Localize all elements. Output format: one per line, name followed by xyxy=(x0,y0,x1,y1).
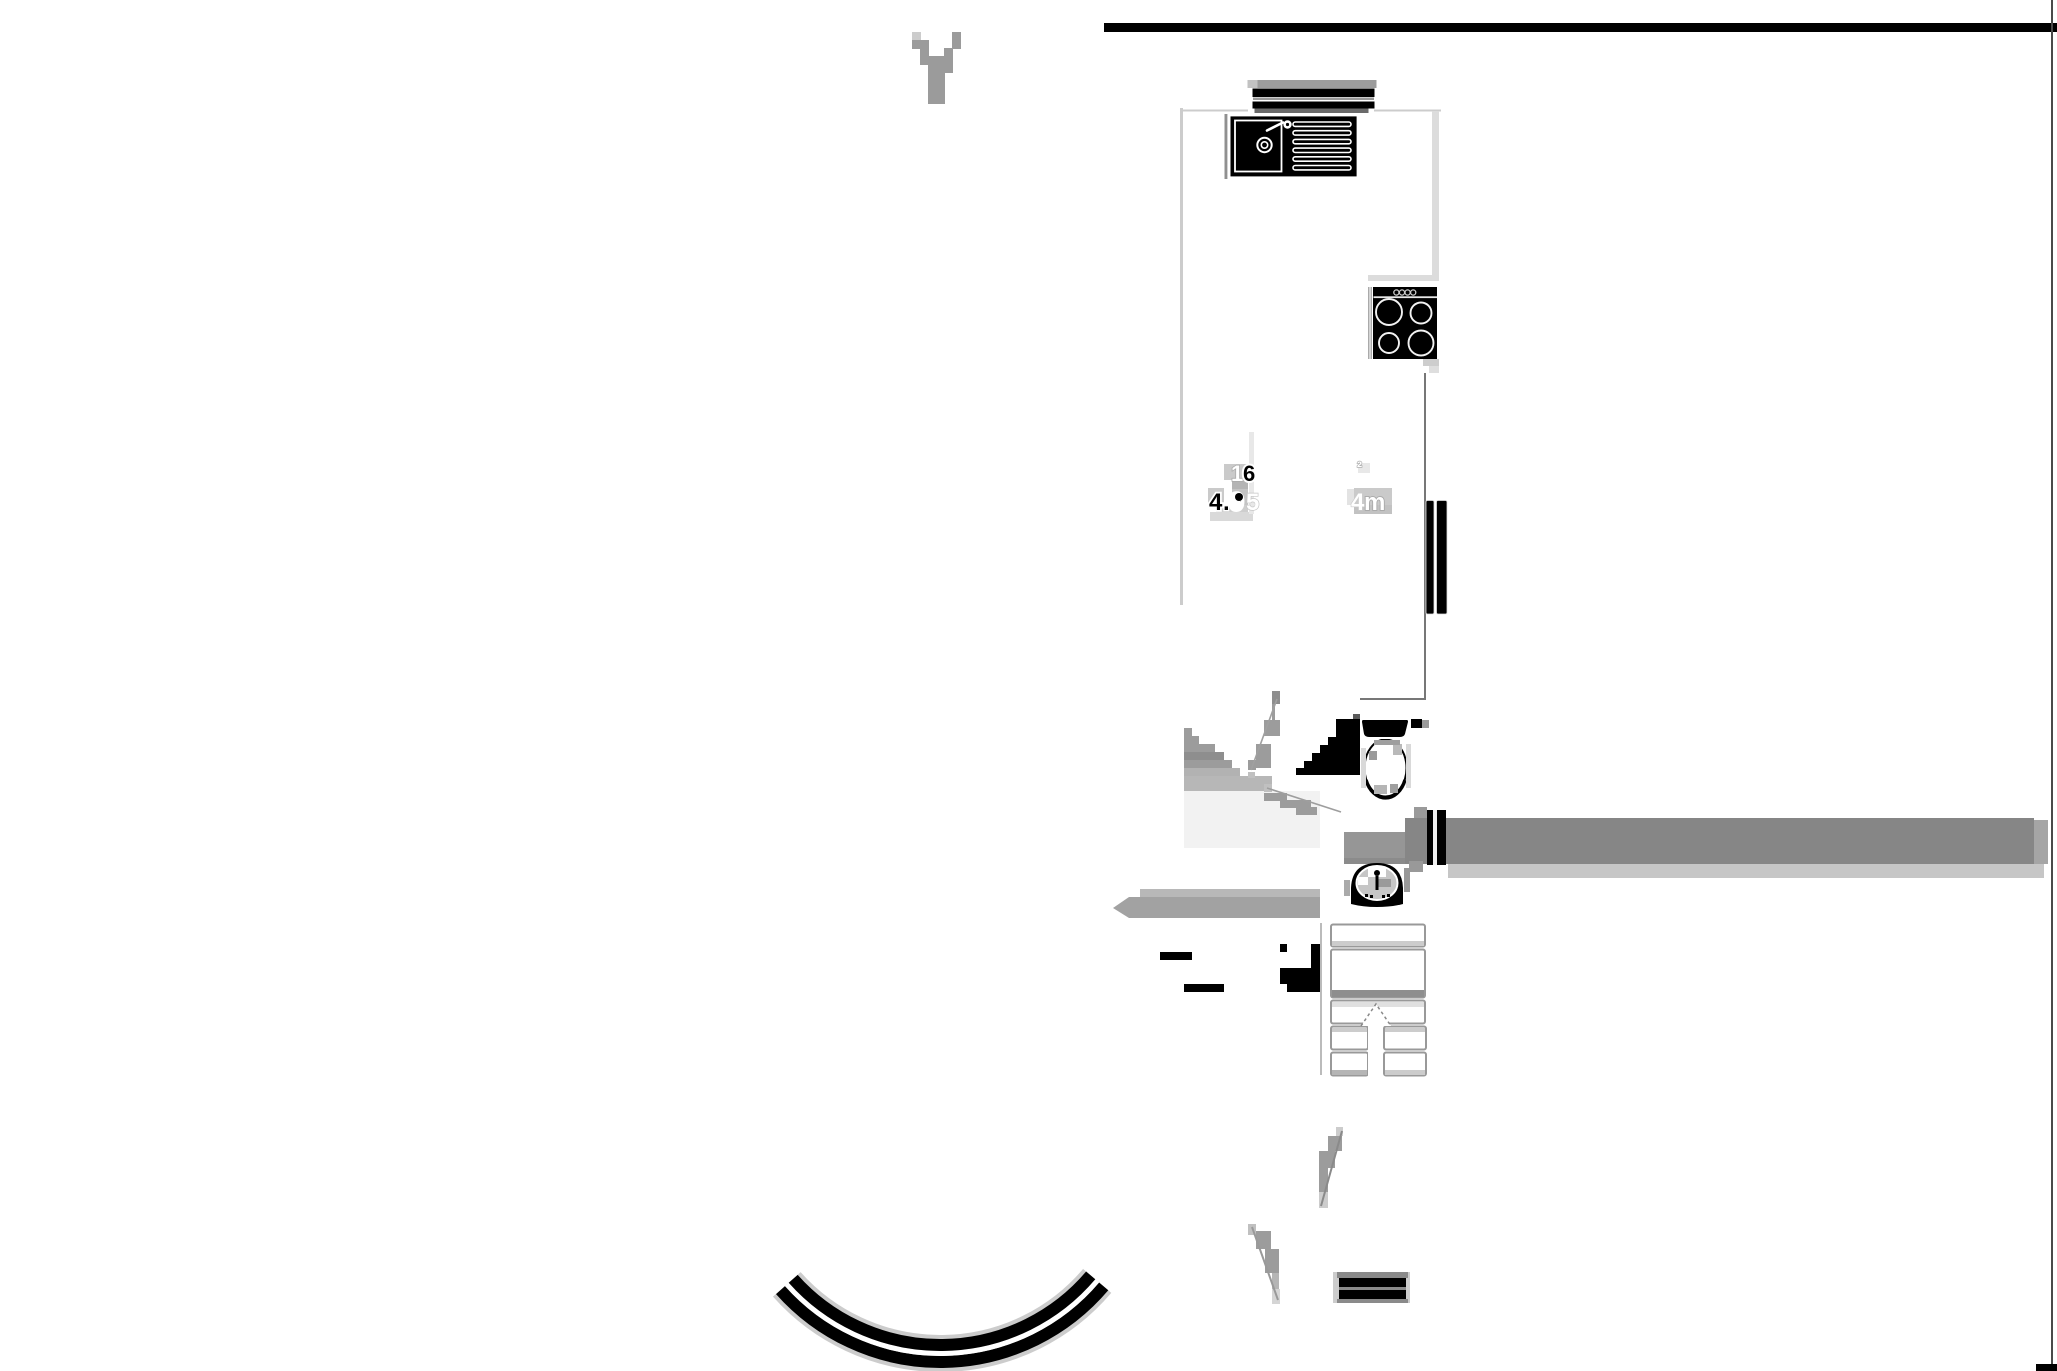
svg-text:1: 1 xyxy=(1231,461,1243,486)
svg-text:.: . xyxy=(1223,489,1230,516)
svg-text:4: 4 xyxy=(1209,489,1223,516)
svg-text:4: 4 xyxy=(1351,489,1365,516)
svg-text:m: m xyxy=(1364,489,1385,516)
svg-text:5: 5 xyxy=(1246,489,1259,516)
svg-text:9: 9 xyxy=(1230,489,1243,516)
svg-text:6: 6 xyxy=(1243,461,1255,486)
svg-text:²: ² xyxy=(1357,459,1362,476)
